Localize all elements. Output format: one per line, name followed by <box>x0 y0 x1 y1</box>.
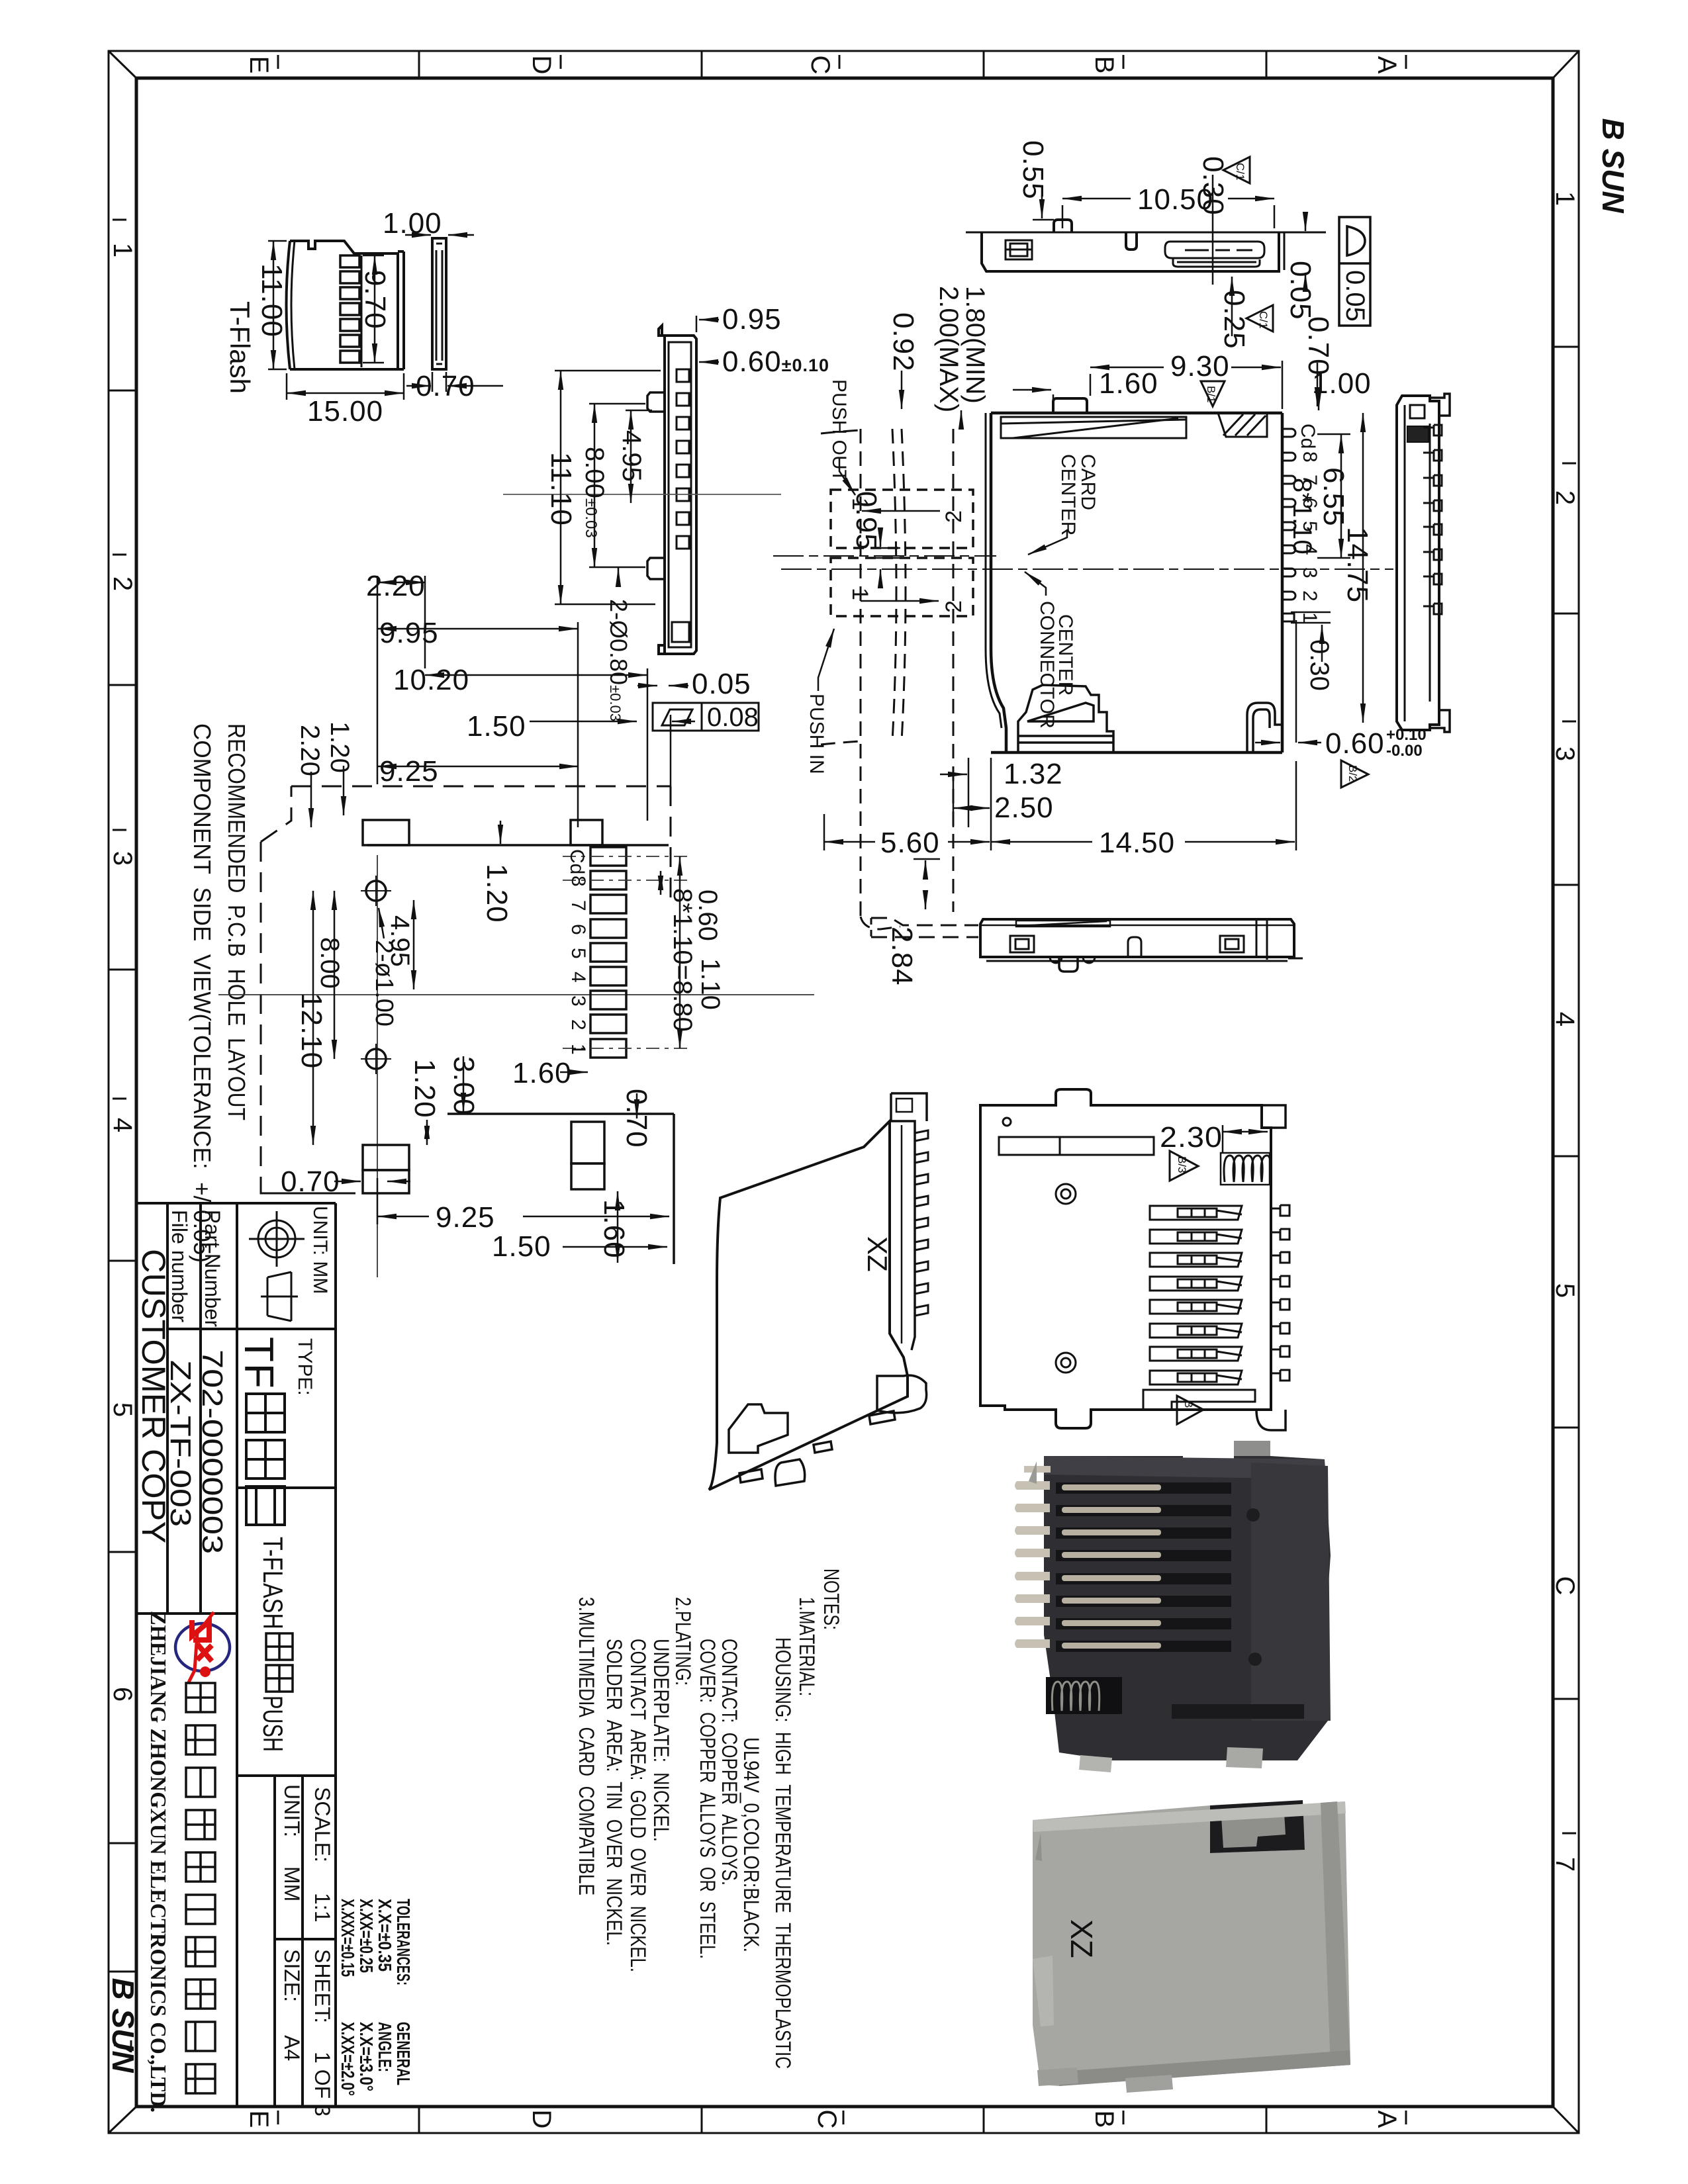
svg-text:1: 1 <box>108 243 137 257</box>
svg-text:1.50: 1.50 <box>492 1230 551 1263</box>
svg-text:1.00: 1.00 <box>1312 367 1372 400</box>
svg-text:0.95: 0.95 <box>722 303 782 336</box>
svg-text:CUSTOMER COPY: CUSTOMER COPY <box>135 1249 172 1543</box>
svg-text:3: 3 <box>1550 747 1579 761</box>
svg-text:C: C <box>1550 1576 1579 1596</box>
svg-text:B: B <box>1182 1400 1195 1408</box>
svg-text:6: 6 <box>108 1687 137 1702</box>
svg-text:ZHEJIANG ZHONGXUN ELECTRONICS: ZHEJIANG ZHONGXUN ELECTRONICS CO.,LTD. <box>146 1611 170 2113</box>
svg-text:2-ø1.00: 2-ø1.00 <box>370 940 398 1026</box>
svg-text:B/2: B/2 <box>1346 765 1359 782</box>
svg-text:B: B <box>1090 56 1119 74</box>
svg-text:PUSH IN: PUSH IN <box>806 694 827 774</box>
svg-text:A: A <box>1372 56 1401 74</box>
svg-text:0.60±0.10: 0.60±0.10 <box>722 345 829 378</box>
svg-text:2.30: 2.30 <box>1160 1121 1223 1154</box>
svg-text:2.20: 2.20 <box>366 570 426 602</box>
svg-text:9.30: 9.30 <box>1170 350 1230 383</box>
svg-text:6.55: 6.55 <box>1317 467 1350 527</box>
svg-text:1 OF 3: 1 OF 3 <box>310 2052 334 2116</box>
svg-text:C: C <box>812 2110 841 2129</box>
svg-text:-0.00: -0.00 <box>1386 742 1423 760</box>
svg-text:14.50: 14.50 <box>1099 827 1175 859</box>
svg-text:GENERAL: GENERAL <box>393 2022 414 2085</box>
svg-text:1.80(MIN): 1.80(MIN) <box>961 286 990 404</box>
svg-text:1: 1 <box>1550 191 1579 206</box>
svg-text:3: 3 <box>108 851 137 866</box>
svg-text:0.30: 0.30 <box>1305 639 1334 691</box>
svg-text:B SUN: B SUN <box>106 1978 140 2073</box>
svg-text:0.05: 0.05 <box>1340 270 1370 322</box>
svg-text:11.10: 11.10 <box>545 452 577 526</box>
svg-text:SHEET:: SHEET: <box>310 1949 334 2023</box>
svg-text:2.00(MAX): 2.00(MAX) <box>934 286 963 412</box>
svg-text:COMPONENT SIDE VIEW(TOLERANC: COMPONENT SIDE VIEW(TOLERANCE: +/-0.05) <box>189 723 216 1263</box>
svg-text:RECOMMENDED P.C.B HOLE LAYO: RECOMMENDED P.C.B HOLE LAYOUT <box>223 723 250 1120</box>
svg-text:8*1.10: 8*1.10 <box>1288 478 1317 555</box>
svg-text:1.20: 1.20 <box>325 721 354 773</box>
svg-text:1.00: 1.00 <box>383 207 442 240</box>
svg-text:CONTACT AREA: GOLD OVER NI: CONTACT AREA: GOLD OVER NICKEL. <box>626 1639 650 1972</box>
svg-text:2: 2 <box>941 510 966 523</box>
svg-text:4: 4 <box>108 1118 137 1132</box>
svg-text:1.MATERIAL:: 1.MATERIAL: <box>795 1597 819 1696</box>
svg-text:SCALE:: SCALE: <box>310 1787 334 1862</box>
svg-text:D: D <box>527 2110 556 2129</box>
svg-text:7: 7 <box>567 900 589 911</box>
svg-text:TOLERANCES:: TOLERANCES: <box>393 1899 414 1985</box>
svg-text:2-Ø0.80±0.03: 2-Ø0.80±0.03 <box>605 599 632 721</box>
svg-text:X.XX=±0.25: X.XX=±0.25 <box>356 1899 377 1973</box>
svg-text:12.10: 12.10 <box>295 993 328 1069</box>
svg-text:9.25: 9.25 <box>379 755 439 788</box>
svg-text:UNIT: MM: UNIT: MM <box>309 1206 331 1294</box>
svg-text:Cd: Cd <box>1297 424 1319 449</box>
svg-text:XZ: XZ <box>1064 1919 1099 1958</box>
svg-text:X.X=±0.35: X.X=±0.35 <box>375 1899 395 1972</box>
svg-text:1.20: 1.20 <box>408 1059 441 1118</box>
svg-text:C/1: C/1 <box>1234 163 1246 180</box>
svg-text:B/3: B/3 <box>1176 1156 1188 1173</box>
svg-text:1.32: 1.32 <box>1004 758 1063 790</box>
svg-text:1.20: 1.20 <box>481 864 513 923</box>
svg-text:0.05: 0.05 <box>1284 261 1317 320</box>
svg-text:B SUN: B SUN <box>1596 118 1630 213</box>
svg-text:0.70: 0.70 <box>281 1165 340 1198</box>
svg-text:X.X=±3.0°: X.X=±3.0° <box>356 2022 377 2091</box>
svg-text:5: 5 <box>108 1402 137 1417</box>
svg-text:0.25: 0.25 <box>1218 290 1250 349</box>
svg-text:0.95: 0.95 <box>850 491 882 551</box>
svg-text:3: 3 <box>567 995 589 1007</box>
svg-text:C: C <box>806 56 835 75</box>
svg-text:1.60: 1.60 <box>598 1199 630 1259</box>
svg-text:0.08: 0.08 <box>707 703 759 732</box>
svg-text:TYPE:: TYPE: <box>294 1338 316 1396</box>
svg-text:15.00: 15.00 <box>307 395 383 428</box>
svg-text:CENTER: CENTER <box>1057 454 1079 535</box>
svg-text:5: 5 <box>567 948 589 959</box>
svg-text:SOLDER AREA: TIN OVER NICK: SOLDER AREA: TIN OVER NICKEL. <box>602 1639 626 1946</box>
svg-text:B: B <box>1090 2111 1119 2128</box>
svg-text:1.60: 1.60 <box>512 1057 572 1089</box>
svg-text:E: E <box>244 2111 273 2128</box>
svg-text:2: 2 <box>1299 590 1321 602</box>
svg-text:TF: TF <box>236 1337 281 1390</box>
svg-text:0.55: 0.55 <box>1017 140 1049 200</box>
svg-text:9.25: 9.25 <box>436 1201 495 1234</box>
svg-text:9.70: 9.70 <box>359 270 391 330</box>
svg-text:0.70: 0.70 <box>416 370 475 402</box>
svg-text:8*1.10=8.80: 8*1.10=8.80 <box>668 888 697 1032</box>
svg-text:11.00: 11.00 <box>256 263 288 338</box>
svg-text:2.84: 2.84 <box>886 927 918 986</box>
svg-text:SIZE:: SIZE: <box>280 1949 304 2002</box>
svg-text:1.50: 1.50 <box>467 710 526 743</box>
svg-text:2: 2 <box>108 576 137 591</box>
svg-text:702-0000003: 702-0000003 <box>196 1349 228 1554</box>
svg-text:4: 4 <box>567 972 589 983</box>
svg-text:1.60: 1.60 <box>1099 367 1158 400</box>
svg-text:MM: MM <box>280 1866 304 1901</box>
svg-text:B/1: B/1 <box>1205 386 1217 403</box>
svg-text:CONTACT: COPPER ALLOYS.: CONTACT: COPPER ALLOYS. <box>718 1639 741 1886</box>
svg-text:2.PLATING:: 2.PLATING: <box>671 1597 695 1686</box>
svg-text:CENTER: CENTER <box>1055 614 1076 696</box>
svg-text:4: 4 <box>1550 1012 1579 1026</box>
svg-text:PUSH: PUSH <box>258 1696 289 1752</box>
svg-text:2: 2 <box>567 1019 589 1030</box>
svg-text:0.92: 0.92 <box>887 312 919 372</box>
svg-text:T-FLASH: T-FLASH <box>258 1537 289 1629</box>
svg-text:2.20: 2.20 <box>295 725 324 776</box>
svg-text:Cd: Cd <box>566 849 588 874</box>
svg-text:NOTES:: NOTES: <box>820 1569 843 1630</box>
svg-text:14.75: 14.75 <box>1341 527 1374 603</box>
svg-text:10.20: 10.20 <box>393 664 469 696</box>
svg-text:2: 2 <box>941 600 966 613</box>
svg-text:1: 1 <box>1299 612 1321 623</box>
svg-text:5.60: 5.60 <box>880 827 940 859</box>
svg-text:C/1: C/1 <box>1257 311 1270 328</box>
svg-text:1: 1 <box>567 1044 589 1055</box>
svg-text:HOUSING: HIGH TEMPERATURE T: HOUSING: HIGH TEMPERATURE THERMOPLASTIC <box>771 1637 795 2069</box>
svg-text:8.00: 8.00 <box>315 937 344 989</box>
svg-text:COVER: COPPER ALLOYS OR ST: COVER: COPPER ALLOYS OR STEEL. <box>696 1639 720 1959</box>
svg-text:6: 6 <box>567 924 589 935</box>
svg-text:D: D <box>527 56 556 75</box>
svg-text:8: 8 <box>567 876 589 887</box>
svg-text:3.MULTIMEDIA CARD COMPATIBLE: 3.MULTIMEDIA CARD COMPATIBLE <box>575 1597 598 1895</box>
svg-text:2: 2 <box>1550 490 1579 505</box>
svg-text:0.60: 0.60 <box>1325 727 1385 760</box>
svg-text:E: E <box>244 56 273 74</box>
svg-text:T-Flash: T-Flash <box>224 301 256 394</box>
svg-text:XZ: XZ <box>862 1236 893 1272</box>
svg-text:7: 7 <box>1550 1857 1579 1872</box>
svg-text:X.XXX=±0.15: X.XXX=±0.15 <box>338 1899 358 1977</box>
svg-text:A4: A4 <box>280 2035 304 2061</box>
svg-text:A: A <box>1372 2111 1401 2128</box>
svg-text:UL94V_0,COLOR:BLACK.: UL94V_0,COLOR:BLACK. <box>739 1737 763 1952</box>
svg-text:X.XX=±2.0°: X.XX=±2.0° <box>338 2022 358 2096</box>
svg-text:2.50: 2.50 <box>994 792 1054 824</box>
svg-text:UNIT:: UNIT: <box>280 1784 304 1837</box>
svg-text:ANGLE:: ANGLE: <box>375 2022 395 2072</box>
svg-text:8: 8 <box>1299 451 1321 463</box>
svg-text:5: 5 <box>1550 1283 1579 1298</box>
svg-text:1.10: 1.10 <box>696 958 725 1010</box>
svg-text:0.05: 0.05 <box>692 668 751 700</box>
svg-text:9.95: 9.95 <box>379 617 439 649</box>
svg-text:UNDERPLATE: NICKEL.: UNDERPLATE: NICKEL. <box>649 1639 673 1842</box>
svg-text:1:1: 1:1 <box>310 1893 334 1922</box>
svg-text:8.00±0.03: 8.00±0.03 <box>580 447 609 538</box>
svg-text:+0.10: +0.10 <box>1386 726 1427 744</box>
svg-text:1: 1 <box>847 588 872 600</box>
svg-text:4.95: 4.95 <box>617 430 646 482</box>
svg-text:CARD: CARD <box>1077 454 1099 510</box>
